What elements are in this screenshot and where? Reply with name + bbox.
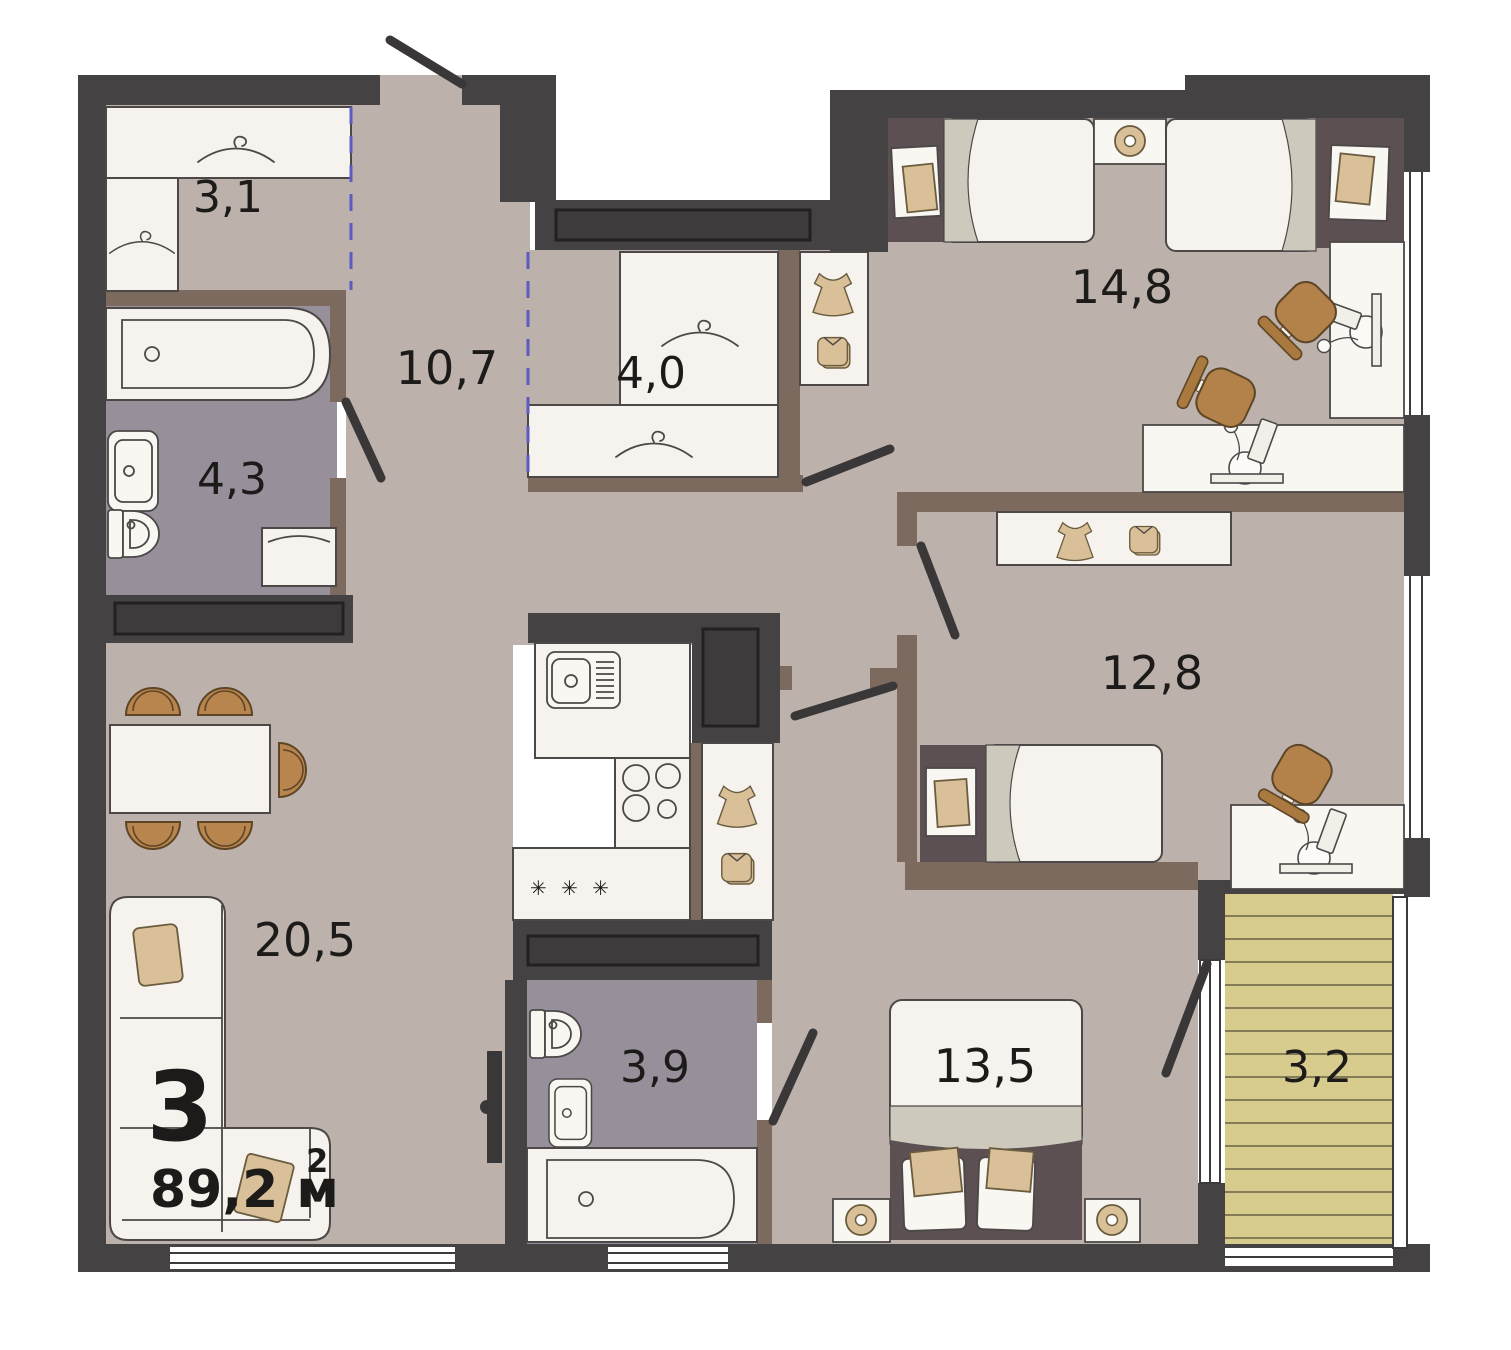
sink-drainer: [596, 662, 614, 698]
nightstand-cloth: [934, 779, 969, 827]
window-bedroom-2: [1404, 576, 1430, 838]
total-area-superscript: 2: [306, 1142, 328, 1180]
nightstand-cloth: [1336, 153, 1375, 204]
room-label-wardrobe: 3,1: [193, 172, 263, 223]
wardrobe-cabinet: [702, 743, 773, 920]
duct-panel: [115, 603, 343, 634]
room-label-bathroom-1: 4,3: [197, 454, 267, 505]
wall-segment: [528, 613, 692, 643]
rooms-count: 3: [147, 1051, 214, 1163]
room-label-living: 20,5: [254, 913, 356, 967]
room-label-closet: 4,0: [616, 348, 686, 399]
wardrobe-cabinet: [997, 512, 1231, 565]
dining-table: [110, 725, 270, 813]
wall-segment: [1198, 1183, 1225, 1244]
nightstand-cloth: [903, 164, 938, 213]
wall-segment: [78, 75, 380, 105]
wall-segment: [1404, 415, 1430, 576]
room-label-balcony: 3,2: [1282, 1042, 1352, 1093]
dress-icon: [1057, 523, 1093, 561]
wall-segment: [757, 980, 772, 1023]
duct-panel: [528, 936, 758, 965]
dishwasher-symbol: ✳ ✳ ✳: [530, 876, 613, 900]
wall-segment: [690, 743, 702, 920]
wall-segment: [500, 105, 556, 202]
sofa-pillow: [133, 924, 184, 987]
pillow: [910, 1148, 962, 1197]
wall-segment: [1404, 118, 1430, 172]
wall-segment: [78, 75, 106, 1272]
wall-segment: [1198, 880, 1225, 960]
wall-segment: [778, 250, 800, 475]
wall-segment: [505, 980, 527, 1244]
wall-segment: [897, 492, 1404, 512]
duct-panel: [556, 210, 810, 240]
wall-segment: [780, 666, 792, 690]
toilet-icon: [530, 1010, 581, 1058]
room-label-hallway: 10,7: [396, 341, 498, 395]
closet-cabinet: [106, 178, 178, 291]
floor-plan-svg: ✳ ✳ ✳: [0, 0, 1511, 1350]
bathtub-icon: [527, 1148, 757, 1242]
window-bathroom-2: [608, 1247, 728, 1269]
window-balcony-right: [1393, 897, 1407, 1248]
dress-icon: [813, 274, 853, 316]
room-label-bathroom-2: 3,9: [620, 1042, 690, 1093]
lamp-icon: [1115, 126, 1145, 156]
tv-mount: [480, 1100, 494, 1114]
dress-icon: [718, 786, 757, 827]
wall-segment: [462, 75, 556, 105]
window-living-room: [170, 1247, 455, 1269]
wall-segment: [897, 512, 917, 546]
sink-icon: [549, 1079, 592, 1147]
room-label-bedroom-2: 12,8: [1101, 646, 1203, 700]
wall-segment: [330, 306, 346, 402]
wall-segment: [830, 90, 1192, 118]
wall-segment: [905, 862, 1198, 890]
toilet-icon: [108, 510, 159, 558]
pillow: [986, 1148, 1033, 1192]
closet-cabinet: [106, 107, 351, 178]
lamp-icon: [846, 1205, 876, 1235]
floor-plan: ✳ ✳ ✳: [0, 0, 1511, 1350]
shirt-icon: [722, 854, 754, 884]
room-label-bedroom-1: 14,8: [1071, 260, 1173, 314]
wall-segment: [757, 1120, 772, 1244]
vent-shaft-panel: [703, 629, 758, 726]
shirt-icon: [818, 338, 850, 368]
room-label-bedroom-3: 13,5: [934, 1039, 1036, 1093]
wall-segment: [1185, 75, 1430, 118]
window-bedroom-1: [1404, 172, 1430, 415]
sink-icon: [108, 431, 158, 511]
wall-segment: [897, 635, 917, 862]
lamp-icon: [1097, 1205, 1127, 1235]
wall-segment: [106, 290, 346, 306]
shirt-icon: [1130, 527, 1160, 556]
